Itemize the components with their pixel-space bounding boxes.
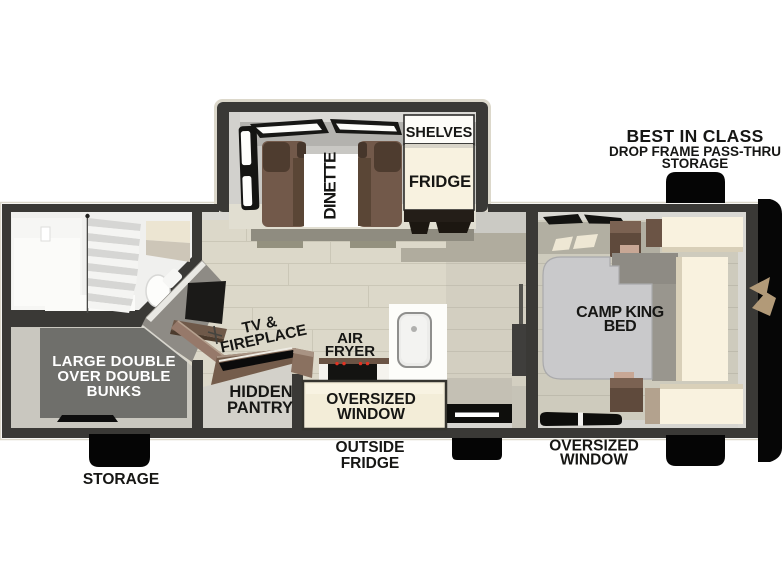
svg-text:STORAGE: STORAGE — [83, 471, 159, 488]
svg-text:FRIDGE: FRIDGE — [341, 455, 400, 472]
svg-text:FRIDGE: FRIDGE — [409, 173, 471, 191]
svg-text:BEST IN CLASS: BEST IN CLASS — [626, 126, 763, 146]
svg-text:OUTSIDE: OUTSIDE — [336, 439, 405, 456]
svg-text:DINETTE: DINETTE — [321, 152, 340, 220]
svg-text:WINDOW: WINDOW — [560, 452, 628, 469]
svg-text:SHELVES: SHELVES — [406, 125, 473, 141]
svg-text:WINDOW: WINDOW — [337, 406, 405, 423]
svg-text:STORAGE: STORAGE — [662, 156, 729, 171]
svg-text:FRYER: FRYER — [325, 343, 375, 360]
svg-text:BUNKS: BUNKS — [87, 383, 142, 400]
svg-text:BED: BED — [604, 318, 637, 335]
svg-text:PANTRY: PANTRY — [227, 399, 293, 417]
